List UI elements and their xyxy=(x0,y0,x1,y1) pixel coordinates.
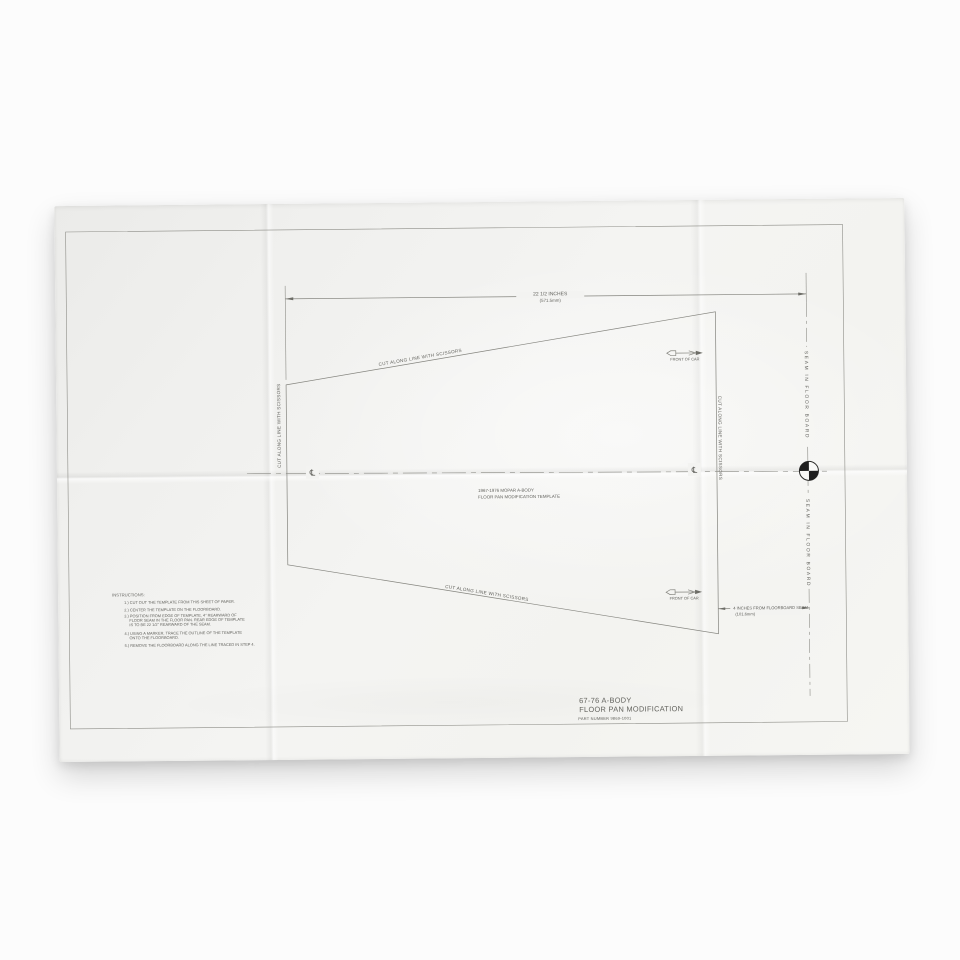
centerline-symbol-right: ℄ xyxy=(691,465,698,475)
top-dimension: 22 1/2 INCHES (571.5mm) xyxy=(285,281,807,380)
photo-stage: 22 1/2 INCHES (571.5mm) ℄ ℄ SEAM IN FLOO… xyxy=(0,0,960,960)
title-block: 67-76 A-BODY FLOOR PAN MODIFICATION PART… xyxy=(578,695,683,721)
cut-labels: CUT ALONG LINE WITH SCISSORS CUT ALONG L… xyxy=(276,345,724,604)
dimension-arrow-left-icon xyxy=(718,607,725,610)
right-dimension-inches: 4 INCHES FROM FLOORBOARD SEAM xyxy=(733,605,808,611)
arrowhead-icon xyxy=(696,351,703,355)
direction-dart-icon xyxy=(666,590,675,595)
instruction-line: 1.) CUT OUT THE TEMPLATE FROM THIS SHEET… xyxy=(124,599,235,605)
front-of-car-label-lower: FRONT OF CAR xyxy=(670,595,699,600)
extension-line-left xyxy=(285,286,286,380)
center-note-line1: 1967-1976 MOPAR A-BODY xyxy=(478,488,534,494)
top-dimension-mm: (571.5mm) xyxy=(540,298,562,303)
arrowhead-icon xyxy=(695,590,702,594)
instructions-heading: INSTRUCTIONS: xyxy=(112,592,145,597)
drawing-border xyxy=(66,225,848,729)
cut-label-left: CUT ALONG LINE WITH SCISSORS xyxy=(276,384,282,468)
cut-label-bottom: CUT ALONG LINE WITH SCISSORS xyxy=(445,584,529,602)
top-dimension-inches: 22 1/2 INCHES xyxy=(533,291,568,297)
instruction-line: IS TO BE 22 1/2" REARWARD OF THE SEAM. xyxy=(129,621,211,627)
paper-sheet: 22 1/2 INCHES (571.5mm) ℄ ℄ SEAM IN FLOO… xyxy=(54,198,909,762)
centerline-symbol-left: ℄ xyxy=(309,468,316,478)
centerline: ℄ ℄ xyxy=(247,461,831,481)
seam-label-upper: SEAM IN FLOOR BOARD xyxy=(803,351,810,439)
registration-mark-icon xyxy=(799,461,818,480)
part-number: PART NUMBER 9869-1001 xyxy=(578,716,632,722)
seam-label-lower: SEAM IN FLOOR BOARD xyxy=(804,499,811,587)
front-of-car-label-upper: FRONT OF CAR xyxy=(670,356,699,361)
template-outline xyxy=(285,312,718,638)
title-line2: FLOOR PAN MODIFICATION xyxy=(579,704,683,714)
direction-dart-icon xyxy=(667,351,676,356)
cut-label-right: CUT ALONG LINE WITH SCISSORS xyxy=(717,396,723,480)
instruction-line: ONTO THE FLOORBOARD. xyxy=(129,635,178,640)
template-drawing: 22 1/2 INCHES (571.5mm) ℄ ℄ SEAM IN FLOO… xyxy=(54,198,909,762)
dimension-arrow-left-icon xyxy=(285,297,293,300)
instructions: INSTRUCTIONS: 1.) CUT OUT THE TEMPLATE F… xyxy=(112,591,255,648)
dimension-arrow-right-icon xyxy=(798,292,806,295)
floorboard-seam-line: SEAM IN FLOOR BOARD SEAM IN FLOOR BOARD xyxy=(802,273,812,696)
center-note-line2: FLOOR PAN MODIFICATION TEMPLATE xyxy=(478,494,560,500)
center-note: 1967-1976 MOPAR A-BODY FLOOR PAN MODIFIC… xyxy=(478,487,560,499)
right-dimension: 4 INCHES FROM FLOORBOARD SEAM (101.6mm) xyxy=(718,603,809,617)
front-of-car-lower: FRONT OF CAR xyxy=(666,589,702,600)
front-of-car-upper: FRONT OF CAR xyxy=(667,350,703,361)
instruction-line: 5.) REMOVE THE FLOORBOARD ALONG THE LINE… xyxy=(125,642,255,648)
instruction-line: 2.) CENTER THE TEMPLATE ON THE FLOORBOAR… xyxy=(124,607,221,613)
right-dimension-mm: (101.6mm) xyxy=(735,611,755,616)
